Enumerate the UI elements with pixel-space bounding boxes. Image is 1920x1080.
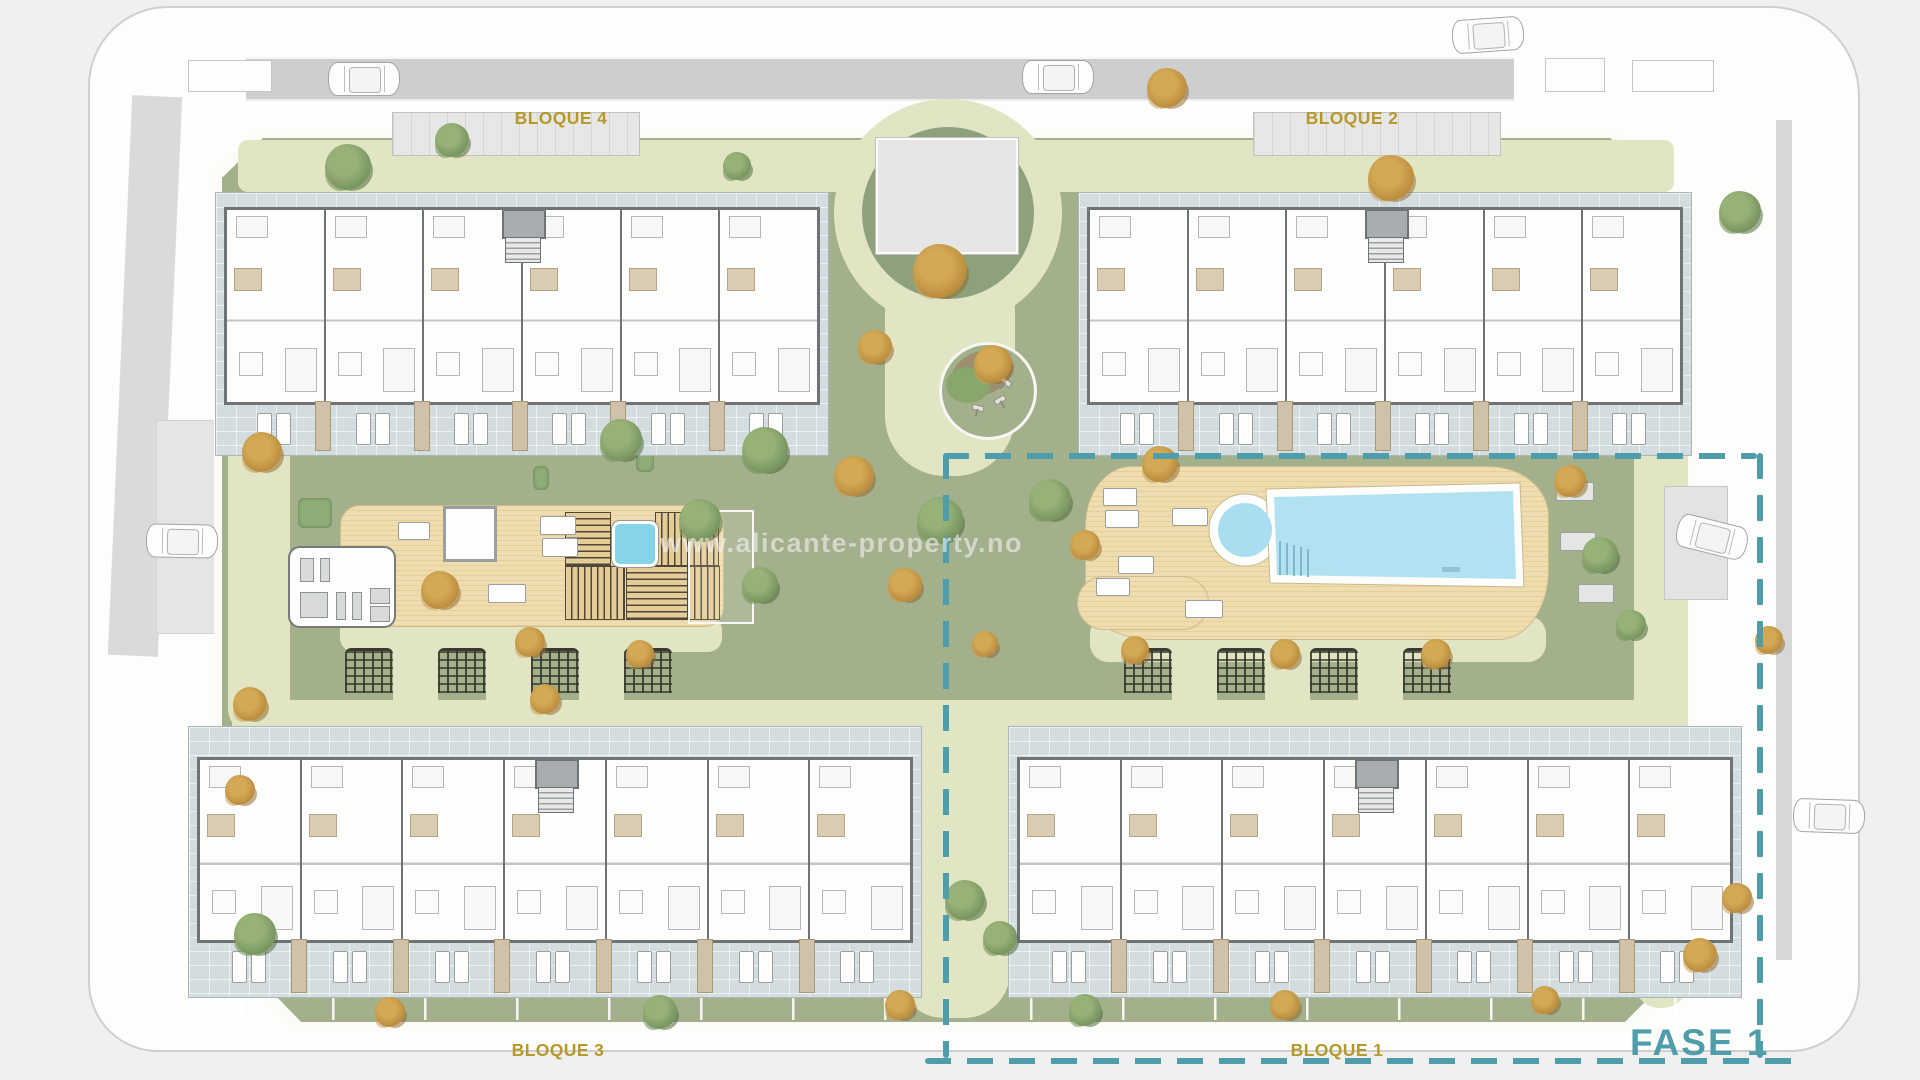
terrace-lounger	[454, 413, 469, 445]
furniture-table	[314, 890, 338, 914]
elevator-core	[535, 759, 579, 789]
sun-lounger	[542, 538, 578, 557]
furniture-table	[1337, 890, 1361, 914]
car-rear-window	[1078, 64, 1079, 91]
terrace-lounger	[473, 413, 488, 445]
label-bloque-4: BLOQUE 4	[451, 108, 671, 129]
terrace-lounger	[435, 951, 450, 983]
terrace-lounger	[375, 413, 390, 445]
car	[1451, 16, 1525, 55]
plunge-pool	[612, 521, 658, 567]
balcony-divider	[1111, 939, 1127, 993]
furniture-bed	[819, 766, 851, 788]
sun-lounger	[1103, 488, 1137, 506]
stair-core	[505, 237, 541, 263]
phase-boundary-right	[1757, 453, 1763, 1058]
furniture-table	[619, 890, 643, 914]
carport-pergola	[345, 648, 393, 693]
terrace-lounger	[454, 951, 469, 983]
terrace-lounger	[232, 951, 247, 983]
car	[1792, 798, 1865, 834]
terrace-lounger	[1120, 413, 1135, 445]
furniture-bed	[1131, 766, 1163, 788]
carport-pergola	[438, 648, 486, 693]
terrace-lounger	[1317, 413, 1332, 445]
stair-core	[1368, 237, 1404, 263]
balcony-divider	[315, 401, 331, 451]
sauna-deck-tile	[565, 566, 625, 620]
furniture-table	[1102, 352, 1126, 376]
furniture-bed	[1436, 766, 1468, 788]
terrace-lounger	[1514, 413, 1529, 445]
furniture-table	[517, 890, 541, 914]
furniture-table	[1032, 890, 1056, 914]
parking-layby	[188, 60, 272, 92]
apartment-unit	[607, 760, 709, 940]
apartment-unit	[709, 760, 811, 940]
label-bloque-1: BLOQUE 1	[1227, 1040, 1447, 1061]
deck-pergola-square	[443, 506, 497, 562]
furniture-table	[436, 352, 460, 376]
terrace-lounger	[1375, 951, 1390, 983]
apartment-unit	[302, 760, 404, 940]
car-cabin	[1694, 521, 1732, 554]
furniture-table	[239, 352, 263, 376]
apartment-unit	[1020, 760, 1122, 940]
terrace-lounger	[555, 951, 570, 983]
jacuzzi-circle	[1218, 503, 1272, 557]
furniture-table	[338, 352, 362, 376]
apartment-unit	[1189, 210, 1288, 402]
terrace-lounger	[637, 951, 652, 983]
terrace-lounger	[758, 951, 773, 983]
terrace-lounger	[1660, 951, 1675, 983]
apartment-unit	[227, 210, 326, 402]
car-cabin	[1813, 803, 1847, 830]
furniture-table	[1299, 352, 1323, 376]
apartment-unit	[622, 210, 721, 402]
terrace-lounger	[1071, 951, 1086, 983]
furniture-bed	[311, 766, 343, 788]
car-rear-window	[1507, 20, 1510, 47]
balcony-divider	[709, 401, 725, 451]
balcony-divider	[494, 939, 510, 993]
car-windshield	[1468, 23, 1471, 50]
terrace-lounger	[859, 951, 874, 983]
apartment-unit	[1485, 210, 1584, 402]
furniture-table	[1541, 890, 1565, 914]
furniture-bed	[236, 216, 268, 238]
terrace-lounger	[1153, 951, 1168, 983]
label-bloque-2: BLOQUE 2	[1242, 108, 1462, 129]
sauna-deck-tile	[626, 566, 688, 620]
furniture-table	[1595, 352, 1619, 376]
furniture-table	[1439, 890, 1463, 914]
terrace-lounger	[1612, 413, 1627, 445]
building-bloque-3	[188, 726, 922, 998]
terrace-lounger	[1336, 413, 1351, 445]
furniture-bed	[1494, 216, 1526, 238]
furniture-bed	[1639, 766, 1671, 788]
play-equipment-icon	[971, 404, 984, 413]
furniture-table	[721, 890, 745, 914]
apartment-unit	[403, 760, 505, 940]
furniture-bed	[412, 766, 444, 788]
terrace-lounger	[1559, 951, 1574, 983]
furniture-table	[1201, 352, 1225, 376]
road-right-edge	[1776, 120, 1792, 960]
elevator-core	[502, 209, 546, 239]
apartment-unit	[1427, 760, 1529, 940]
furniture-table	[1642, 890, 1666, 914]
terrace-lounger	[739, 951, 754, 983]
terrace-lounger	[1356, 951, 1371, 983]
gym-equipment-icon	[320, 558, 330, 582]
stair-core	[1358, 787, 1394, 813]
sun-lounger	[1118, 556, 1154, 574]
furniture-bed	[335, 216, 367, 238]
watermark: www.alicante-property.no	[660, 528, 1023, 559]
balcony-divider	[1213, 939, 1229, 993]
balcony-divider	[1619, 939, 1635, 993]
terrace-lounger	[552, 413, 567, 445]
apartment-unit	[720, 210, 817, 402]
balcony-divider	[1277, 401, 1293, 451]
furniture-bed	[1296, 216, 1328, 238]
balcony-divider	[1178, 401, 1194, 451]
gym-equipment-icon	[370, 606, 390, 622]
apartment-unit	[326, 210, 425, 402]
car	[1022, 60, 1094, 94]
sun-lounger	[1096, 578, 1130, 596]
furniture-table	[634, 352, 658, 376]
terrace-lounger	[651, 413, 666, 445]
balcony-divider	[414, 401, 430, 451]
phase-boundary-top	[943, 453, 1757, 459]
terrace-lounger	[536, 951, 551, 983]
label-fase-1: FASE 1	[1630, 1022, 1770, 1064]
apartment-unit	[1090, 210, 1189, 402]
terrace-lounger	[1434, 413, 1449, 445]
terrace-lounger	[1172, 951, 1187, 983]
carport-pergola	[1217, 648, 1265, 693]
terrace-lounger	[1238, 413, 1253, 445]
label-bloque-3: BLOQUE 3	[448, 1040, 668, 1061]
balcony-divider	[799, 939, 815, 993]
furniture-bed	[1232, 766, 1264, 788]
shrub	[533, 466, 549, 490]
furniture-bed	[616, 766, 648, 788]
balcony-divider	[697, 939, 713, 993]
furniture-table	[1134, 890, 1158, 914]
apartment-unit	[1122, 760, 1224, 940]
furniture-bed	[1538, 766, 1570, 788]
building-bloque-2	[1078, 192, 1692, 456]
balcony-divider	[1416, 939, 1432, 993]
gym-equipment-icon	[300, 592, 328, 618]
furniture-table	[1497, 352, 1521, 376]
car-windshield	[162, 527, 163, 554]
car-windshield	[1038, 64, 1039, 91]
balcony-divider	[596, 939, 612, 993]
furniture-table	[1398, 352, 1422, 376]
car-rear-window	[201, 528, 202, 555]
furniture-table	[212, 890, 236, 914]
sun-lounger	[488, 584, 526, 603]
terrace-lounger	[356, 413, 371, 445]
car-cabin	[349, 67, 382, 93]
balcony-divider	[291, 939, 307, 993]
terrace-lounger	[656, 951, 671, 983]
balcony-divider	[512, 401, 528, 451]
balcony-divider	[1473, 401, 1489, 451]
terrace-lounger	[1476, 951, 1491, 983]
car-rear-window	[384, 66, 385, 93]
furniture-table	[1235, 890, 1259, 914]
shrub	[298, 498, 332, 528]
terrace-lounger	[352, 951, 367, 983]
terrace-lounger	[840, 951, 855, 983]
stair-core	[538, 787, 574, 813]
furniture-bed	[433, 216, 465, 238]
furniture-bed	[718, 766, 750, 788]
sun-lounger	[540, 516, 576, 535]
parking-layby	[1632, 60, 1714, 92]
car-rear-window	[1848, 803, 1850, 830]
car-windshield	[1809, 802, 1811, 829]
terrace-lounger	[1578, 951, 1593, 983]
gym-equipment-icon	[300, 558, 314, 582]
car	[146, 523, 219, 558]
terrace-lounger	[1052, 951, 1067, 983]
terrace-lounger	[251, 951, 266, 983]
car-windshield	[344, 66, 345, 93]
plaza-building-pad	[876, 138, 1018, 254]
gym-equipment-icon	[352, 592, 362, 620]
gym-equipment-icon	[370, 588, 390, 604]
furniture-bed	[729, 216, 761, 238]
terrace-lounger	[1457, 951, 1472, 983]
terrace-lounger	[1415, 413, 1430, 445]
terrace-lounger	[1274, 951, 1289, 983]
gym-equipment-icon	[336, 592, 346, 620]
apartment-unit	[1583, 210, 1680, 402]
balcony-divider	[1572, 401, 1588, 451]
furniture-bed	[631, 216, 663, 238]
site-plan-canvas: BLOQUE 4 BLOQUE 2 BLOQUE 3 BLOQUE 1 FASE…	[0, 0, 1920, 1080]
play-equipment-icon	[993, 394, 1006, 405]
building-bloque-1	[1008, 726, 1742, 998]
apartment-unit	[1223, 760, 1325, 940]
apartment-unit	[1529, 760, 1631, 940]
gym-room	[288, 546, 396, 628]
car	[328, 62, 400, 96]
terrace-lounger	[333, 951, 348, 983]
furniture-table	[535, 352, 559, 376]
terrace-lounger	[1533, 413, 1548, 445]
terrace-lounger	[1631, 413, 1646, 445]
terrace-lounger	[1255, 951, 1270, 983]
terrace-lounger	[670, 413, 685, 445]
sun-lounger	[398, 522, 430, 540]
swimming-pool	[1180, 455, 1560, 615]
furniture-bed	[1029, 766, 1061, 788]
car-cabin	[1043, 65, 1076, 91]
elevator-core	[1355, 759, 1399, 789]
pool-ladder	[1442, 567, 1460, 572]
balcony-divider	[1314, 939, 1330, 993]
elevator-core	[1365, 209, 1409, 239]
car-cabin	[166, 529, 199, 556]
apartment-unit	[810, 760, 910, 940]
furniture-table	[415, 890, 439, 914]
carport-pergola	[1310, 648, 1358, 693]
garden-lounger	[1578, 584, 1614, 603]
furniture-bed	[1592, 216, 1624, 238]
road-top	[246, 57, 1514, 101]
furniture-bed	[1099, 216, 1131, 238]
terrace-lounger	[1219, 413, 1234, 445]
furniture-table	[822, 890, 846, 914]
balcony-divider	[393, 939, 409, 993]
pool-water	[1274, 491, 1516, 579]
car-cabin	[1472, 22, 1507, 51]
apartment-unit	[1630, 760, 1730, 940]
parking-layby	[1545, 58, 1605, 92]
balcony-divider	[1517, 939, 1533, 993]
terrace-lounger	[1139, 413, 1154, 445]
furniture-bed	[1198, 216, 1230, 238]
sun-lounger	[1105, 510, 1139, 528]
building-bloque-4	[215, 192, 829, 456]
furniture-table	[732, 352, 756, 376]
balcony-divider	[1375, 401, 1391, 451]
terrace-lounger	[571, 413, 586, 445]
